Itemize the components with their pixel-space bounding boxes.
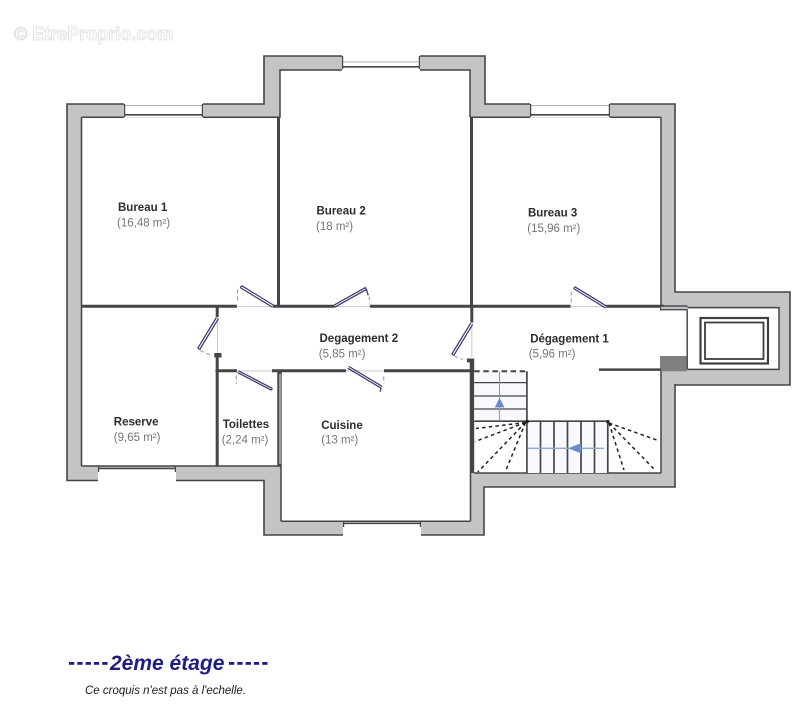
svg-text:(13 m²): (13 m²) — [321, 435, 358, 447]
svg-text:(5,96 m²): (5,96 m²) — [529, 349, 576, 361]
svg-text:(16,48 m²): (16,48 m²) — [117, 218, 170, 230]
svg-text:© EtreProprio.com: © EtreProprio.com — [14, 24, 173, 44]
svg-text:Cuisine: Cuisine — [321, 420, 363, 432]
svg-text:Bureau 1: Bureau 1 — [118, 202, 168, 214]
svg-text:Degagement 2: Degagement 2 — [320, 333, 399, 345]
svg-text:(15,96 m²): (15,96 m²) — [527, 223, 580, 235]
svg-text:(2,24 m²): (2,24 m²) — [222, 435, 269, 447]
svg-text:Reserve: Reserve — [114, 417, 159, 429]
svg-text:Dégagement 1: Dégagement 1 — [530, 334, 609, 346]
svg-text:(18 m²): (18 m²) — [316, 221, 353, 233]
svg-text:Ce croquis n'est pas à l'echel: Ce croquis n'est pas à l'echelle. — [85, 685, 246, 697]
svg-text:Toilettes: Toilettes — [223, 419, 269, 431]
svg-text:2ème étage: 2ème étage — [109, 652, 225, 675]
svg-text:(9,65 m²): (9,65 m²) — [114, 432, 161, 444]
svg-text:Bureau 3: Bureau 3 — [528, 207, 577, 219]
svg-text:Bureau 2: Bureau 2 — [317, 206, 366, 218]
svg-text:(5,85 m²): (5,85 m²) — [319, 349, 366, 361]
